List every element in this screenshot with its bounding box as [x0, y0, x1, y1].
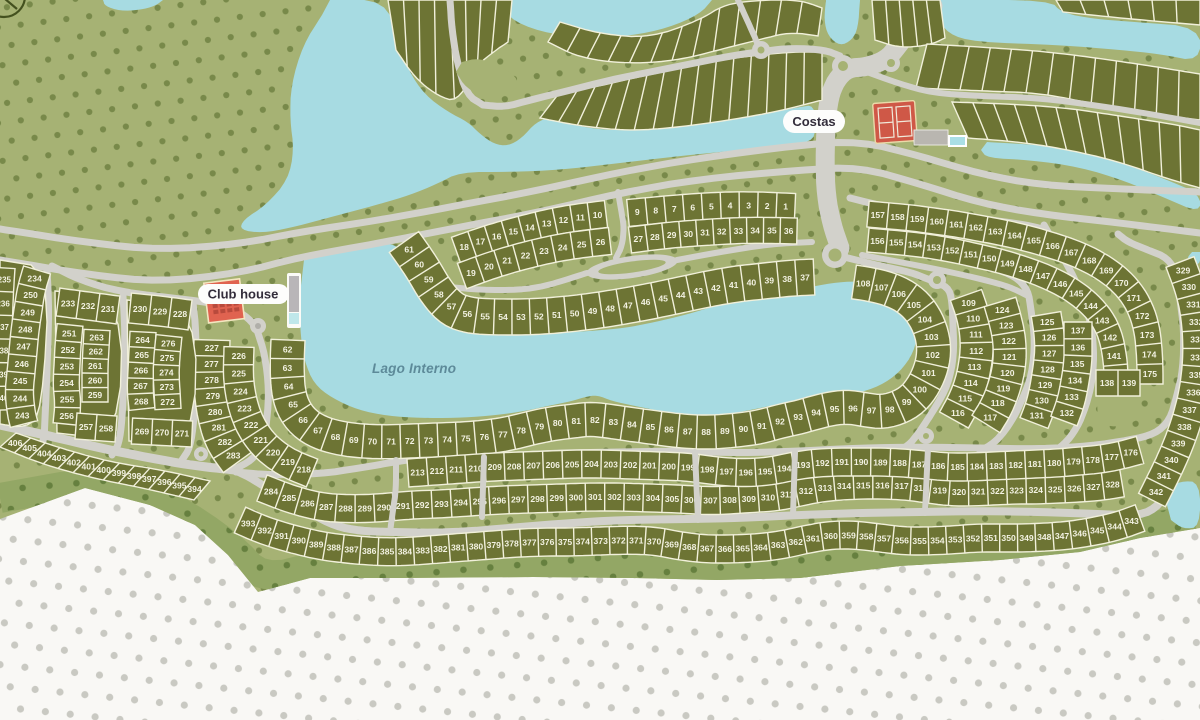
svg-text:270: 270 — [155, 428, 170, 438]
svg-text:152: 152 — [945, 246, 960, 256]
svg-text:99: 99 — [902, 397, 912, 407]
svg-text:360: 360 — [824, 531, 839, 541]
svg-text:153: 153 — [927, 242, 942, 252]
svg-text:272: 272 — [160, 397, 175, 407]
svg-text:312: 312 — [799, 486, 814, 496]
svg-text:34: 34 — [750, 226, 760, 236]
svg-text:276: 276 — [161, 338, 176, 348]
svg-text:71: 71 — [386, 437, 396, 447]
svg-text:192: 192 — [815, 458, 830, 468]
svg-text:145: 145 — [1069, 289, 1084, 299]
svg-text:60: 60 — [415, 259, 425, 269]
svg-text:395: 395 — [172, 480, 187, 490]
svg-text:165: 165 — [1027, 235, 1042, 245]
svg-text:308: 308 — [722, 495, 737, 505]
svg-text:280: 280 — [208, 407, 223, 417]
svg-text:389: 389 — [309, 540, 324, 550]
svg-text:127: 127 — [1042, 349, 1057, 359]
svg-text:402: 402 — [67, 457, 82, 467]
svg-text:188: 188 — [893, 458, 908, 468]
svg-text:105: 105 — [907, 300, 922, 310]
svg-text:225: 225 — [232, 369, 247, 379]
svg-text:6: 6 — [690, 202, 695, 212]
svg-text:297: 297 — [511, 495, 526, 505]
svg-text:190: 190 — [854, 457, 869, 467]
svg-text:221: 221 — [254, 435, 269, 445]
svg-text:85: 85 — [646, 422, 656, 432]
svg-text:33: 33 — [734, 226, 744, 236]
svg-text:157: 157 — [871, 210, 886, 220]
svg-text:81: 81 — [572, 416, 582, 426]
svg-text:219: 219 — [281, 457, 296, 467]
svg-text:340: 340 — [1164, 455, 1179, 465]
svg-text:3: 3 — [746, 201, 751, 211]
svg-text:151: 151 — [964, 250, 979, 260]
svg-text:345: 345 — [1090, 526, 1105, 536]
svg-text:1: 1 — [783, 202, 788, 212]
svg-text:299: 299 — [550, 493, 565, 503]
svg-text:114: 114 — [964, 378, 978, 388]
svg-text:133: 133 — [1064, 392, 1079, 402]
svg-text:134: 134 — [1068, 376, 1083, 386]
svg-text:136: 136 — [1071, 342, 1086, 352]
svg-text:313: 313 — [818, 483, 833, 493]
svg-text:383: 383 — [416, 545, 431, 555]
svg-text:64: 64 — [284, 382, 294, 392]
svg-text:173: 173 — [1140, 330, 1155, 340]
svg-text:236: 236 — [0, 299, 10, 308]
svg-text:79: 79 — [535, 422, 545, 432]
svg-text:20: 20 — [484, 262, 494, 272]
svg-text:169: 169 — [1099, 265, 1114, 275]
svg-text:78: 78 — [516, 426, 526, 436]
svg-text:106: 106 — [892, 289, 907, 299]
svg-text:67: 67 — [313, 426, 323, 436]
svg-text:405: 405 — [23, 443, 38, 453]
svg-text:186: 186 — [931, 461, 946, 471]
svg-text:48: 48 — [605, 303, 615, 313]
svg-text:322: 322 — [990, 486, 1005, 496]
svg-text:351: 351 — [984, 533, 999, 543]
svg-text:358: 358 — [859, 532, 874, 542]
svg-text:247: 247 — [16, 342, 31, 352]
svg-text:98: 98 — [885, 404, 895, 414]
svg-text:147: 147 — [1036, 271, 1051, 281]
svg-text:38: 38 — [782, 274, 792, 284]
svg-text:104: 104 — [918, 315, 933, 325]
svg-text:298: 298 — [530, 494, 545, 504]
svg-text:149: 149 — [1000, 259, 1015, 269]
svg-text:62: 62 — [283, 344, 293, 354]
svg-text:343: 343 — [1124, 516, 1139, 526]
svg-text:203: 203 — [604, 459, 619, 469]
svg-text:77: 77 — [498, 429, 508, 439]
svg-text:231: 231 — [101, 304, 116, 314]
svg-text:109: 109 — [961, 298, 976, 308]
svg-text:35: 35 — [767, 226, 777, 236]
svg-text:39: 39 — [765, 276, 775, 286]
svg-text:207: 207 — [526, 461, 541, 471]
svg-text:195: 195 — [758, 466, 773, 476]
svg-text:82: 82 — [590, 415, 600, 425]
svg-text:148: 148 — [1018, 264, 1033, 274]
svg-text:56: 56 — [463, 309, 473, 319]
svg-text:388: 388 — [327, 543, 342, 553]
svg-text:108: 108 — [856, 279, 871, 289]
svg-text:159: 159 — [910, 214, 925, 224]
svg-text:131: 131 — [1030, 411, 1045, 421]
svg-text:92: 92 — [775, 417, 785, 427]
svg-text:89: 89 — [720, 426, 730, 436]
svg-text:13: 13 — [542, 218, 552, 228]
svg-text:292: 292 — [415, 500, 430, 510]
svg-text:57: 57 — [447, 302, 457, 312]
svg-text:84: 84 — [627, 420, 637, 430]
svg-text:Lago Interno: Lago Interno — [372, 361, 456, 376]
svg-text:259: 259 — [88, 390, 103, 400]
svg-text:352: 352 — [966, 534, 981, 544]
svg-text:75: 75 — [461, 434, 471, 444]
svg-text:120: 120 — [1000, 368, 1015, 378]
svg-text:307: 307 — [703, 495, 718, 505]
svg-text:267: 267 — [133, 381, 148, 391]
svg-text:392: 392 — [258, 525, 273, 535]
svg-text:167: 167 — [1064, 247, 1079, 257]
svg-text:32: 32 — [717, 227, 727, 237]
svg-text:326: 326 — [1067, 483, 1082, 493]
svg-text:189: 189 — [873, 457, 888, 467]
svg-text:21: 21 — [502, 256, 512, 266]
svg-text:126: 126 — [1042, 333, 1057, 343]
svg-text:229: 229 — [153, 306, 168, 316]
svg-text:355: 355 — [912, 536, 927, 546]
svg-text:193: 193 — [796, 460, 811, 470]
svg-text:121: 121 — [1002, 352, 1017, 362]
svg-text:Costas: Costas — [792, 114, 835, 129]
svg-text:103: 103 — [924, 332, 939, 342]
svg-text:5: 5 — [709, 201, 714, 211]
svg-text:25: 25 — [577, 240, 587, 250]
svg-text:354: 354 — [930, 536, 945, 546]
svg-text:112: 112 — [969, 346, 983, 356]
svg-text:142: 142 — [1103, 333, 1118, 343]
svg-text:286: 286 — [300, 499, 315, 509]
svg-text:174: 174 — [1142, 350, 1157, 360]
svg-text:130: 130 — [1035, 396, 1050, 406]
svg-text:175: 175 — [1143, 369, 1158, 379]
svg-text:137: 137 — [1071, 326, 1086, 336]
svg-text:87: 87 — [683, 426, 693, 436]
svg-text:274: 274 — [159, 368, 174, 378]
svg-text:300: 300 — [569, 493, 584, 503]
svg-text:304: 304 — [646, 493, 661, 503]
svg-text:88: 88 — [701, 427, 711, 437]
svg-text:102: 102 — [925, 350, 940, 360]
svg-text:275: 275 — [160, 353, 175, 363]
svg-text:31: 31 — [700, 228, 710, 238]
svg-text:161: 161 — [949, 219, 964, 229]
svg-text:74: 74 — [442, 435, 452, 445]
svg-text:122: 122 — [1002, 336, 1017, 346]
svg-text:362: 362 — [789, 537, 804, 547]
svg-text:403: 403 — [52, 453, 67, 463]
svg-text:338: 338 — [1177, 422, 1192, 432]
svg-text:249: 249 — [21, 307, 36, 317]
svg-text:268: 268 — [134, 396, 149, 406]
svg-text:390: 390 — [292, 536, 307, 546]
svg-text:96: 96 — [848, 403, 858, 413]
svg-text:334: 334 — [1190, 352, 1200, 362]
svg-text:66: 66 — [298, 415, 308, 425]
svg-text:52: 52 — [534, 311, 544, 321]
svg-text:273: 273 — [160, 382, 175, 392]
svg-text:55: 55 — [480, 311, 490, 321]
svg-text:314: 314 — [837, 481, 852, 491]
svg-text:385: 385 — [380, 547, 395, 557]
svg-text:168: 168 — [1082, 255, 1097, 265]
svg-text:158: 158 — [890, 212, 905, 222]
svg-text:315: 315 — [856, 480, 871, 490]
svg-text:97: 97 — [867, 405, 877, 415]
svg-text:18: 18 — [459, 242, 469, 252]
svg-text:111: 111 — [969, 330, 983, 340]
svg-text:11: 11 — [576, 212, 585, 222]
svg-text:95: 95 — [830, 404, 840, 414]
svg-text:353: 353 — [948, 535, 963, 545]
svg-text:164: 164 — [1007, 231, 1022, 241]
svg-text:301: 301 — [588, 492, 603, 502]
svg-text:198: 198 — [700, 465, 715, 475]
svg-text:335: 335 — [1189, 370, 1200, 380]
svg-text:294: 294 — [454, 498, 469, 508]
svg-text:76: 76 — [480, 432, 490, 442]
svg-text:248: 248 — [18, 325, 33, 335]
svg-text:397: 397 — [142, 474, 157, 484]
svg-text:128: 128 — [1040, 364, 1055, 374]
svg-text:279: 279 — [206, 391, 221, 401]
svg-text:339: 339 — [1171, 439, 1186, 449]
svg-text:7: 7 — [672, 204, 677, 214]
svg-text:125: 125 — [1040, 317, 1055, 327]
svg-text:59: 59 — [424, 275, 434, 285]
svg-text:327: 327 — [1086, 482, 1101, 492]
svg-text:94: 94 — [811, 408, 821, 418]
svg-text:342: 342 — [1149, 487, 1164, 497]
svg-text:208: 208 — [507, 461, 522, 471]
svg-text:371: 371 — [629, 536, 644, 546]
svg-text:281: 281 — [212, 422, 227, 432]
svg-text:9: 9 — [635, 207, 640, 217]
svg-text:376: 376 — [540, 537, 555, 547]
svg-text:170: 170 — [1114, 278, 1129, 288]
svg-text:53: 53 — [516, 312, 526, 322]
svg-text:80: 80 — [553, 418, 563, 428]
svg-text:374: 374 — [576, 537, 591, 547]
svg-text:264: 264 — [135, 335, 150, 345]
svg-text:144: 144 — [1083, 301, 1098, 311]
svg-text:260: 260 — [88, 376, 103, 386]
svg-text:116: 116 — [951, 408, 965, 418]
svg-text:234: 234 — [27, 273, 42, 283]
svg-text:261: 261 — [88, 361, 103, 371]
svg-text:400: 400 — [97, 465, 112, 475]
svg-text:200: 200 — [662, 461, 677, 471]
svg-text:113: 113 — [967, 362, 981, 372]
svg-text:372: 372 — [611, 536, 626, 546]
svg-text:37: 37 — [800, 273, 810, 283]
svg-text:262: 262 — [89, 347, 104, 357]
svg-text:179: 179 — [1066, 457, 1081, 467]
svg-text:63: 63 — [283, 363, 293, 373]
svg-text:177: 177 — [1105, 452, 1120, 462]
svg-text:156: 156 — [870, 236, 885, 246]
svg-text:197: 197 — [719, 467, 734, 477]
svg-text:375: 375 — [558, 537, 573, 547]
svg-text:206: 206 — [546, 460, 561, 470]
svg-text:204: 204 — [584, 459, 599, 469]
svg-text:115: 115 — [958, 393, 972, 403]
svg-text:278: 278 — [205, 375, 220, 385]
svg-text:30: 30 — [684, 229, 694, 239]
svg-text:370: 370 — [647, 537, 662, 547]
svg-text:129: 129 — [1038, 380, 1053, 390]
svg-text:135: 135 — [1070, 359, 1085, 369]
svg-text:160: 160 — [930, 217, 945, 227]
svg-text:Club house: Club house — [208, 287, 279, 302]
svg-text:350: 350 — [1001, 533, 1016, 543]
svg-text:257: 257 — [79, 422, 94, 432]
svg-text:47: 47 — [623, 301, 633, 311]
svg-text:51: 51 — [552, 310, 562, 320]
svg-text:361: 361 — [806, 533, 821, 543]
svg-text:399: 399 — [112, 468, 127, 478]
svg-text:251: 251 — [62, 328, 77, 338]
svg-text:363: 363 — [771, 540, 786, 550]
svg-text:232: 232 — [81, 301, 96, 311]
svg-text:17: 17 — [476, 237, 486, 247]
svg-text:359: 359 — [841, 530, 856, 540]
svg-text:367: 367 — [700, 544, 715, 554]
svg-text:83: 83 — [609, 417, 619, 427]
svg-text:155: 155 — [889, 238, 904, 248]
svg-text:391: 391 — [274, 531, 289, 541]
svg-text:211: 211 — [449, 465, 463, 475]
svg-text:333: 333 — [1190, 335, 1200, 345]
svg-text:366: 366 — [718, 544, 733, 554]
svg-text:381: 381 — [451, 543, 466, 553]
svg-text:305: 305 — [665, 494, 680, 504]
svg-text:348: 348 — [1037, 532, 1052, 542]
svg-text:238: 238 — [0, 347, 9, 356]
svg-text:344: 344 — [1107, 522, 1122, 532]
svg-text:254: 254 — [59, 378, 74, 388]
svg-text:310: 310 — [761, 492, 776, 502]
svg-text:378: 378 — [504, 539, 519, 549]
svg-text:230: 230 — [133, 304, 148, 314]
svg-text:283: 283 — [226, 451, 241, 461]
svg-text:14: 14 — [525, 222, 535, 232]
svg-text:119: 119 — [996, 383, 1010, 393]
svg-text:266: 266 — [134, 366, 149, 376]
svg-text:256: 256 — [60, 411, 75, 421]
svg-text:41: 41 — [729, 280, 739, 290]
svg-text:72: 72 — [405, 436, 415, 446]
svg-text:235: 235 — [0, 276, 12, 285]
svg-text:271: 271 — [175, 429, 190, 439]
svg-text:185: 185 — [950, 462, 965, 472]
svg-text:263: 263 — [89, 332, 104, 342]
svg-text:243: 243 — [15, 411, 30, 421]
svg-text:180: 180 — [1047, 458, 1062, 468]
svg-text:379: 379 — [487, 540, 502, 550]
svg-text:15: 15 — [509, 227, 519, 237]
svg-text:123: 123 — [999, 320, 1014, 330]
svg-text:107: 107 — [874, 283, 889, 293]
svg-text:357: 357 — [877, 534, 892, 544]
svg-text:162: 162 — [969, 223, 984, 233]
svg-text:320: 320 — [952, 487, 967, 497]
svg-text:332: 332 — [1189, 317, 1200, 327]
svg-text:49: 49 — [588, 306, 598, 316]
svg-text:373: 373 — [594, 536, 609, 546]
svg-text:331: 331 — [1186, 299, 1200, 309]
svg-text:289: 289 — [358, 504, 373, 514]
svg-text:336: 336 — [1186, 388, 1200, 398]
svg-text:296: 296 — [492, 495, 507, 505]
svg-text:393: 393 — [241, 519, 256, 529]
svg-text:228: 228 — [173, 309, 188, 319]
svg-text:284: 284 — [264, 487, 279, 497]
svg-text:73: 73 — [424, 435, 434, 445]
svg-text:365: 365 — [736, 544, 751, 554]
svg-text:8: 8 — [653, 206, 658, 216]
svg-text:244: 244 — [13, 394, 28, 404]
svg-text:4: 4 — [728, 201, 733, 211]
svg-text:406: 406 — [8, 438, 23, 448]
svg-text:28: 28 — [650, 232, 660, 242]
svg-text:265: 265 — [135, 350, 150, 360]
svg-text:184: 184 — [970, 462, 985, 472]
svg-text:202: 202 — [623, 460, 638, 470]
svg-text:27: 27 — [634, 234, 644, 244]
svg-text:337: 337 — [1182, 405, 1197, 415]
svg-text:258: 258 — [99, 423, 114, 433]
svg-text:19: 19 — [466, 268, 476, 278]
svg-text:10: 10 — [593, 210, 603, 220]
svg-text:86: 86 — [664, 425, 674, 435]
svg-text:325: 325 — [1048, 484, 1063, 494]
svg-text:328: 328 — [1105, 480, 1120, 490]
svg-text:54: 54 — [498, 312, 508, 322]
svg-text:347: 347 — [1055, 531, 1070, 541]
svg-text:163: 163 — [988, 226, 1003, 236]
svg-text:287: 287 — [319, 502, 334, 512]
svg-text:43: 43 — [694, 286, 704, 296]
svg-text:65: 65 — [288, 400, 298, 410]
svg-text:23: 23 — [539, 246, 549, 256]
svg-text:196: 196 — [739, 467, 754, 477]
svg-text:46: 46 — [641, 297, 651, 307]
svg-text:69: 69 — [349, 435, 359, 445]
svg-text:191: 191 — [835, 457, 850, 467]
svg-text:218: 218 — [297, 465, 312, 475]
svg-text:22: 22 — [521, 251, 531, 261]
svg-text:394: 394 — [187, 484, 202, 494]
svg-text:384: 384 — [398, 546, 413, 556]
svg-text:302: 302 — [607, 492, 622, 502]
svg-text:224: 224 — [233, 386, 248, 396]
svg-text:16: 16 — [492, 231, 502, 241]
